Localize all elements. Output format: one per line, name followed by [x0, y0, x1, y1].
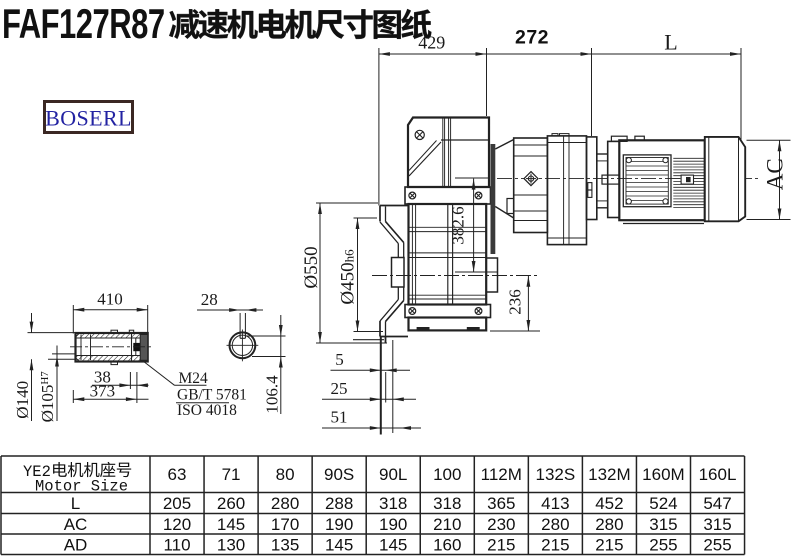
- svg-text:100: 100: [433, 465, 461, 484]
- svg-text:145: 145: [217, 515, 245, 534]
- svg-text:547: 547: [703, 494, 731, 513]
- svg-text:524: 524: [649, 494, 677, 513]
- svg-text:255: 255: [649, 535, 677, 554]
- svg-text:130: 130: [217, 535, 245, 554]
- svg-text:373: 373: [90, 381, 116, 400]
- svg-text:205: 205: [163, 494, 191, 513]
- svg-text:Ø450h6: Ø450h6: [338, 249, 359, 305]
- svg-text:452: 452: [595, 494, 623, 513]
- svg-text:365: 365: [487, 494, 515, 513]
- svg-text:FAF127R87: FAF127R87: [2, 0, 165, 47]
- svg-text:190: 190: [325, 515, 353, 534]
- svg-text:L: L: [664, 30, 677, 55]
- svg-text:255: 255: [703, 535, 731, 554]
- svg-text:230: 230: [487, 515, 515, 534]
- svg-text:318: 318: [379, 494, 407, 513]
- svg-text:Ø140: Ø140: [13, 381, 32, 419]
- svg-text:112M: 112M: [481, 465, 522, 484]
- svg-text:145: 145: [379, 535, 407, 554]
- svg-text:315: 315: [649, 515, 677, 534]
- svg-text:Ø550: Ø550: [301, 246, 322, 288]
- svg-text:28: 28: [201, 290, 218, 309]
- svg-text:215: 215: [595, 535, 623, 554]
- svg-text:160L: 160L: [699, 465, 737, 484]
- svg-text:215: 215: [487, 535, 515, 554]
- svg-text:90L: 90L: [379, 465, 407, 484]
- svg-text:280: 280: [271, 494, 299, 513]
- svg-text:382.6: 382.6: [449, 206, 468, 244]
- svg-text:132M: 132M: [588, 465, 631, 484]
- svg-text:Motor Size: Motor Size: [35, 477, 128, 495]
- svg-text:106.4: 106.4: [262, 375, 281, 414]
- svg-text:135: 135: [271, 535, 299, 554]
- svg-text:ISO 4018: ISO 4018: [177, 402, 237, 419]
- svg-text:51: 51: [331, 408, 348, 427]
- svg-text:160M: 160M: [642, 465, 685, 484]
- svg-text:AC: AC: [64, 515, 88, 534]
- svg-text:210: 210: [433, 515, 461, 534]
- svg-text:429: 429: [418, 33, 445, 53]
- svg-text:160: 160: [433, 535, 461, 554]
- svg-text:272: 272: [515, 27, 549, 49]
- svg-text:Ø105H7: Ø105H7: [38, 371, 57, 423]
- svg-text:25: 25: [331, 379, 348, 398]
- svg-text:71: 71: [222, 465, 241, 484]
- svg-text:M24: M24: [179, 370, 209, 387]
- svg-text:5: 5: [335, 350, 344, 369]
- svg-text:AC: AC: [762, 158, 787, 190]
- svg-text:AD: AD: [64, 535, 88, 554]
- svg-text:63: 63: [168, 465, 187, 484]
- svg-text:170: 170: [271, 515, 299, 534]
- svg-text:215: 215: [541, 535, 569, 554]
- svg-text:110: 110: [163, 535, 190, 554]
- svg-text:132S: 132S: [535, 465, 575, 484]
- svg-text:L: L: [71, 494, 80, 513]
- svg-text:280: 280: [595, 515, 623, 534]
- svg-text:280: 280: [541, 515, 569, 534]
- svg-text:410: 410: [97, 290, 123, 309]
- svg-text:BOSERL: BOSERL: [45, 106, 132, 131]
- svg-text:236: 236: [505, 289, 524, 315]
- svg-text:288: 288: [325, 494, 353, 513]
- svg-text:190: 190: [379, 515, 407, 534]
- svg-text:145: 145: [325, 535, 353, 554]
- svg-text:413: 413: [541, 494, 569, 513]
- svg-text:120: 120: [163, 515, 191, 534]
- svg-text:318: 318: [433, 494, 461, 513]
- svg-text:315: 315: [703, 515, 731, 534]
- svg-text:80: 80: [276, 465, 295, 484]
- svg-text:260: 260: [217, 494, 245, 513]
- svg-text:90S: 90S: [324, 465, 354, 484]
